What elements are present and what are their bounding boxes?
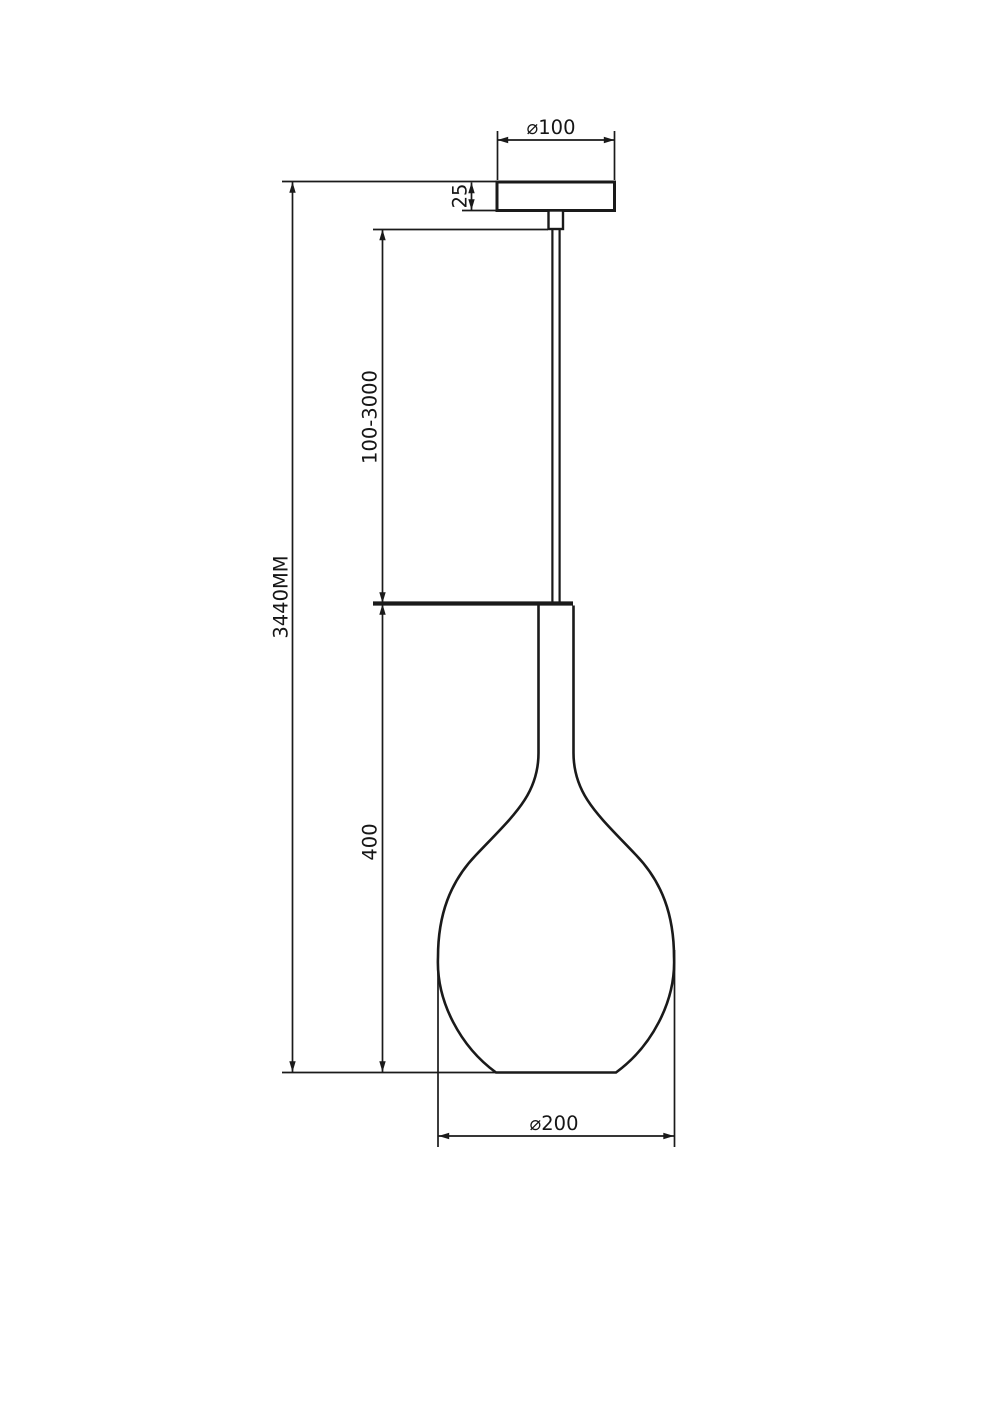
- dim-suspension-length: 100-3000: [359, 230, 549, 604]
- dimension-label: ⌀100: [527, 116, 576, 139]
- shade-outline: [438, 606, 674, 1073]
- pendant-lamp-technical-drawing: ⌀100 25 100-3000 3440MM 400: [0, 0, 992, 1403]
- drawing-sheet: ⌀100 25 100-3000 3440MM 400: [0, 0, 992, 1403]
- dim-shade-height: 400: [359, 604, 383, 1072]
- dimension-label: 3440MM: [270, 555, 293, 638]
- dim-total-height: 3440MM: [270, 182, 501, 1073]
- dimension-label: ⌀200: [530, 1112, 579, 1135]
- stem-outline: [549, 211, 564, 230]
- dim-canopy-diameter: ⌀100: [498, 116, 615, 180]
- dimension-label: 100-3000: [359, 370, 382, 464]
- fixture: [373, 182, 674, 1073]
- dim-canopy-height: 25: [449, 183, 498, 211]
- dim-shade-diameter: ⌀200: [438, 950, 675, 1147]
- dimension-label: 400: [359, 823, 382, 860]
- dimension-label: 25: [449, 184, 472, 209]
- canopy-outline: [497, 182, 615, 211]
